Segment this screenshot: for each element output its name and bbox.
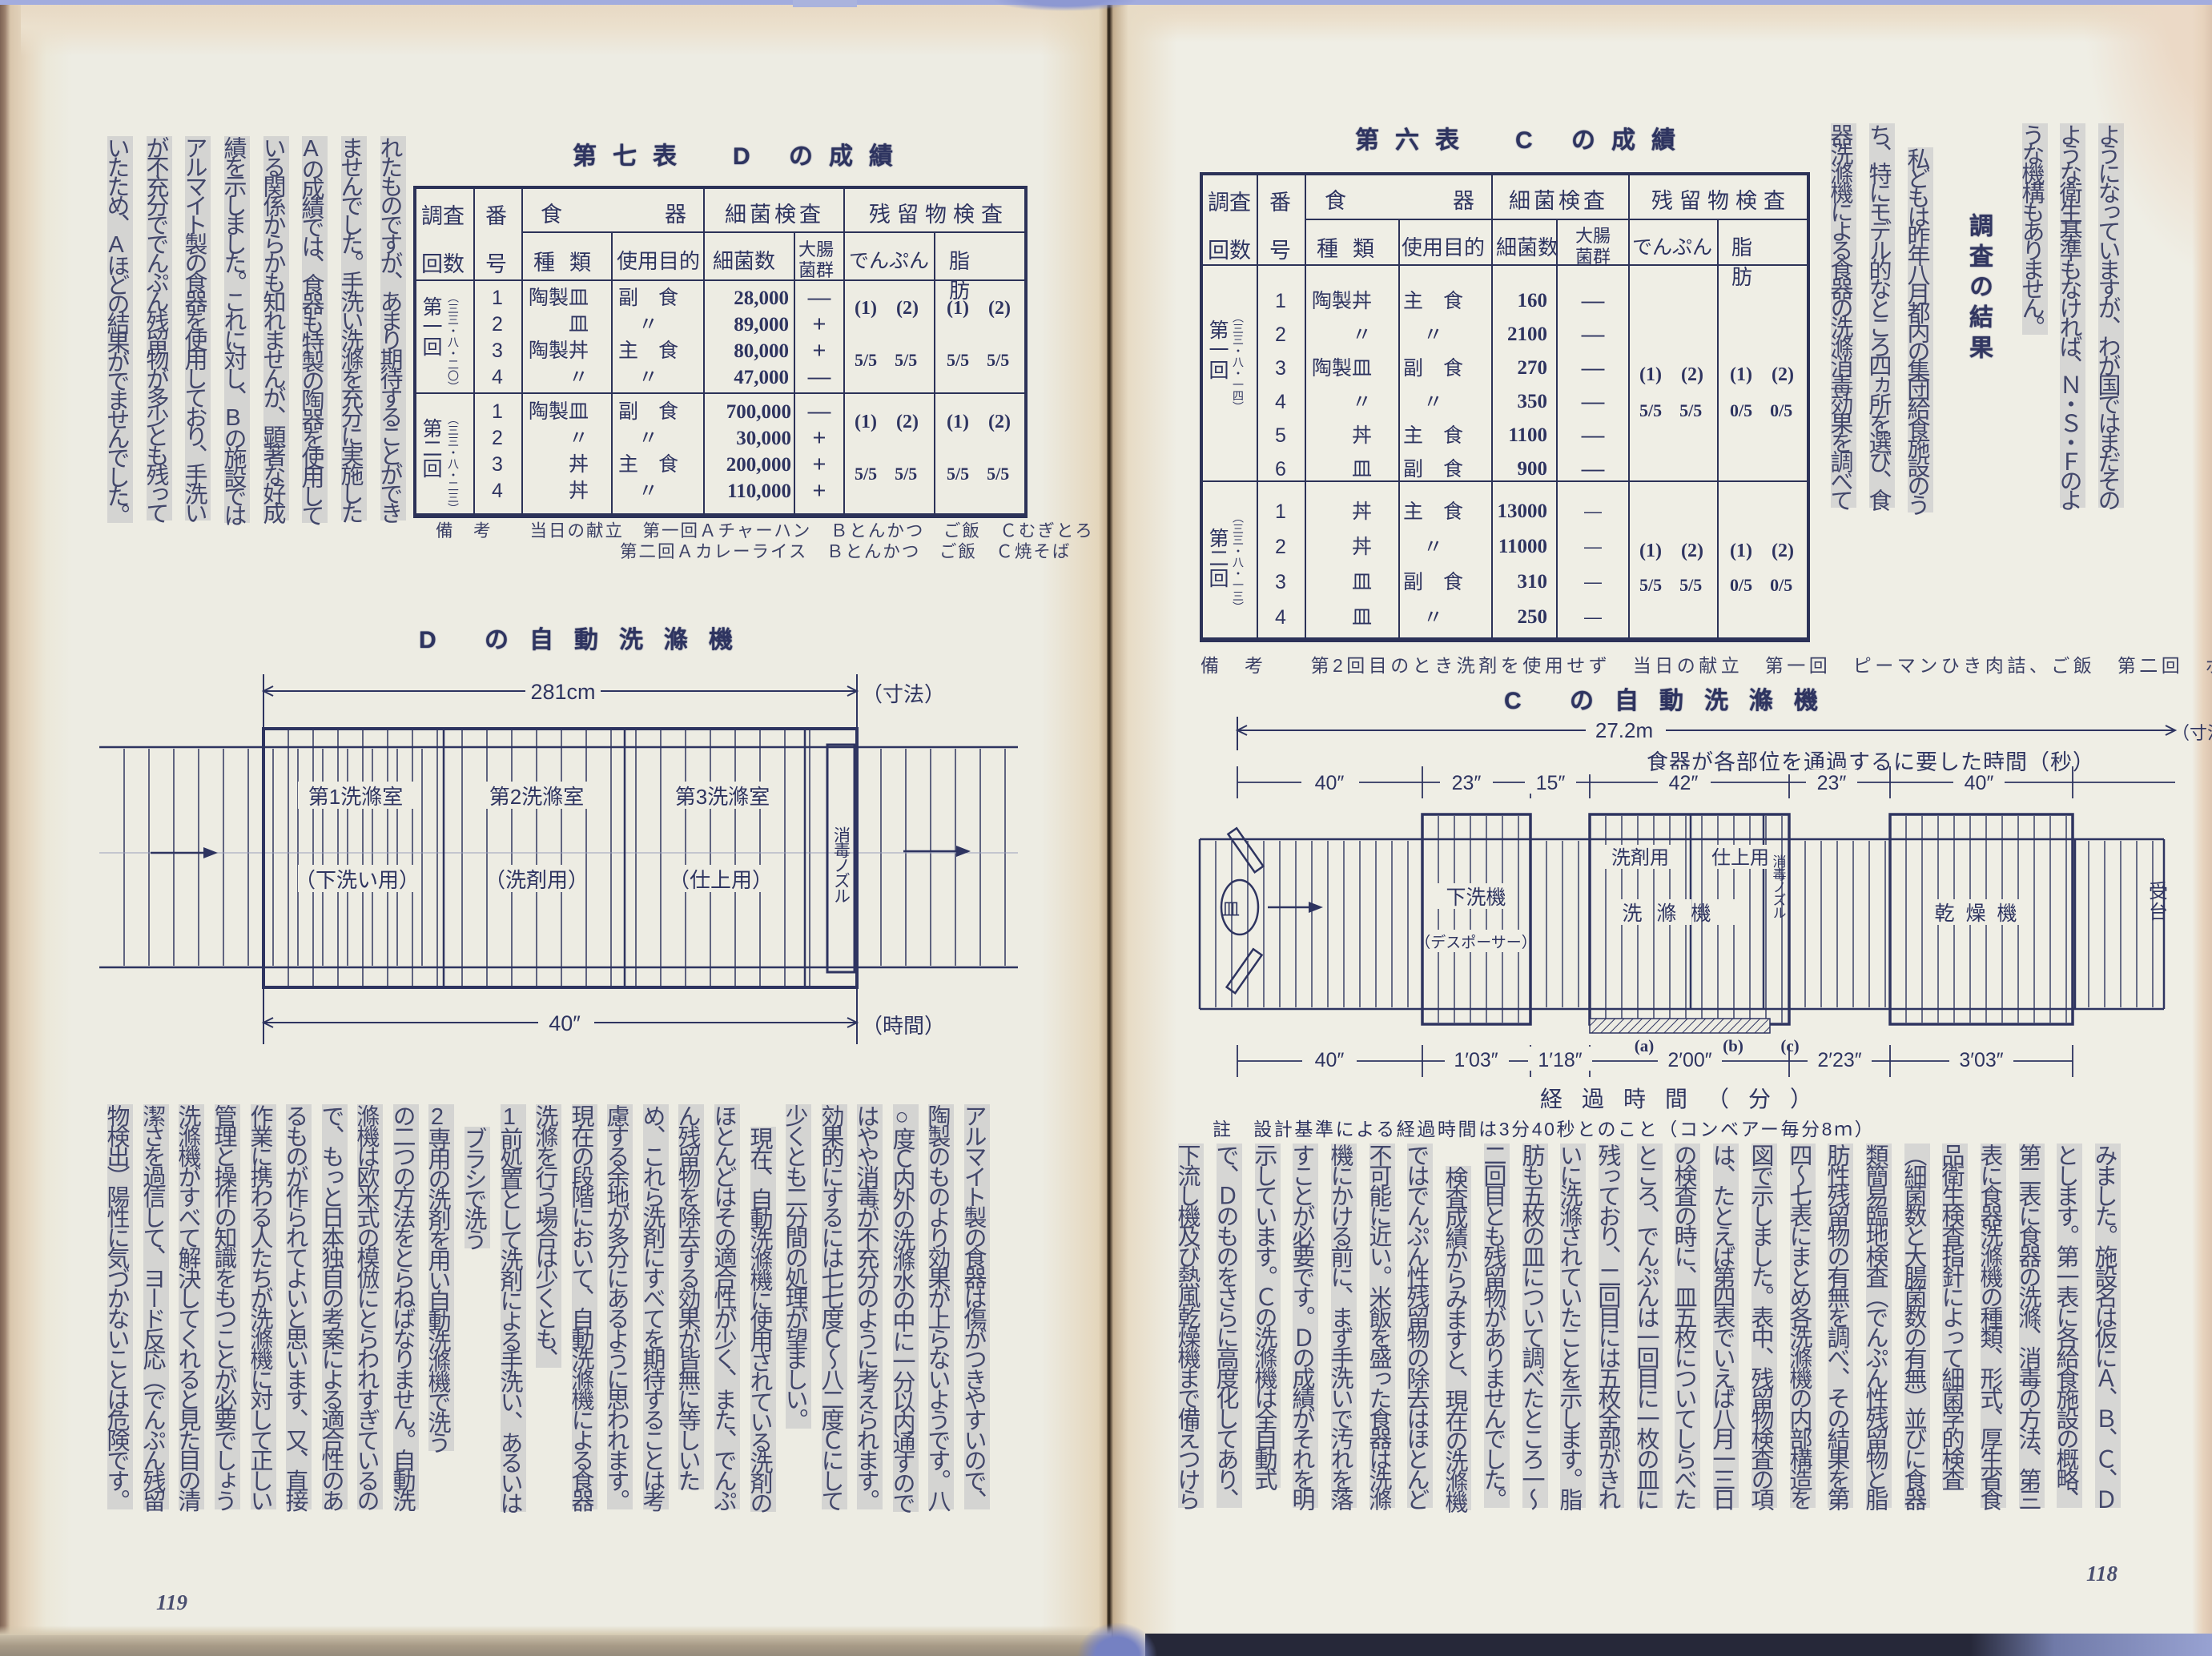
svg-text:（仕上用）: （仕上用） (669, 868, 773, 892)
svg-text:(a): (a) (1635, 1036, 1655, 1055)
svg-text:23″: 23″ (1452, 772, 1482, 794)
svg-text:第3洗滌室: 第3洗滌室 (675, 785, 770, 809)
svg-text:281cm: 281cm (530, 680, 595, 704)
svg-text:1′03″: 1′03″ (1454, 1049, 1498, 1071)
svg-text:（寸法）: （寸法） (2172, 723, 2212, 743)
svg-text:（下洗い用）: （下洗い用） (295, 868, 420, 892)
svg-text:受台: 受台 (2146, 881, 2167, 922)
svg-text:40″: 40″ (1965, 772, 1994, 794)
svg-text:15″: 15″ (1536, 772, 1566, 794)
svg-text:（デスポーサー）: （デスポーサー） (1415, 934, 1537, 951)
svg-text:消毒ノズル: 消毒ノズル (832, 826, 851, 902)
svg-text:皿: 皿 (1222, 899, 1240, 919)
svg-text:第2洗滌室: 第2洗滌室 (489, 785, 584, 809)
svg-text:経過時間（分）: 経過時間（分） (1540, 1087, 1832, 1111)
svg-text:1′18″: 1′18″ (1538, 1049, 1582, 1071)
svg-text:（時間）: （時間） (862, 1014, 945, 1038)
svg-text:40″: 40″ (1315, 772, 1345, 794)
svg-text:23″: 23″ (1817, 772, 1847, 794)
svg-text:食器が各部位を通過するに要した時間（秒）: 食器が各部位を通過するに要した時間（秒） (1647, 750, 2095, 774)
svg-text:下洗機: 下洗機 (1446, 886, 1506, 909)
svg-text:(c): (c) (1780, 1036, 1799, 1055)
svg-text:洗剤用: 洗剤用 (1611, 847, 1669, 869)
svg-text:註 設計基準による経過時間は3分40秒とのこと（コンベアー毎: 註 設計基準による経過時間は3分40秒とのこと（コンベアー毎分8ｍ） (1213, 1119, 1875, 1140)
svg-text:3′03″: 3′03″ (1959, 1049, 2003, 1071)
svg-text:（寸法）: （寸法） (862, 682, 945, 706)
svg-text:（洗剤用）: （洗剤用） (485, 868, 589, 892)
svg-text:(b): (b) (1723, 1036, 1743, 1055)
svg-text:2′00″: 2′00″ (1667, 1049, 1711, 1071)
svg-text:27.2m: 27.2m (1595, 718, 1653, 742)
svg-text:消毒ノズル: 消毒ノズル (1771, 854, 1787, 918)
svg-text:2′23″: 2′23″ (1817, 1049, 1861, 1071)
svg-text:40″: 40″ (549, 1011, 581, 1035)
svg-text:乾燥機: 乾燥機 (1934, 902, 2028, 925)
svg-text:40″: 40″ (1315, 1049, 1345, 1071)
svg-text:42″: 42″ (1669, 772, 1699, 794)
svg-text:仕上用: 仕上用 (1711, 847, 1769, 869)
svg-text:洗滌機: 洗滌機 (1622, 902, 1725, 925)
svg-text:第1洗滌室: 第1洗滌室 (308, 785, 403, 809)
